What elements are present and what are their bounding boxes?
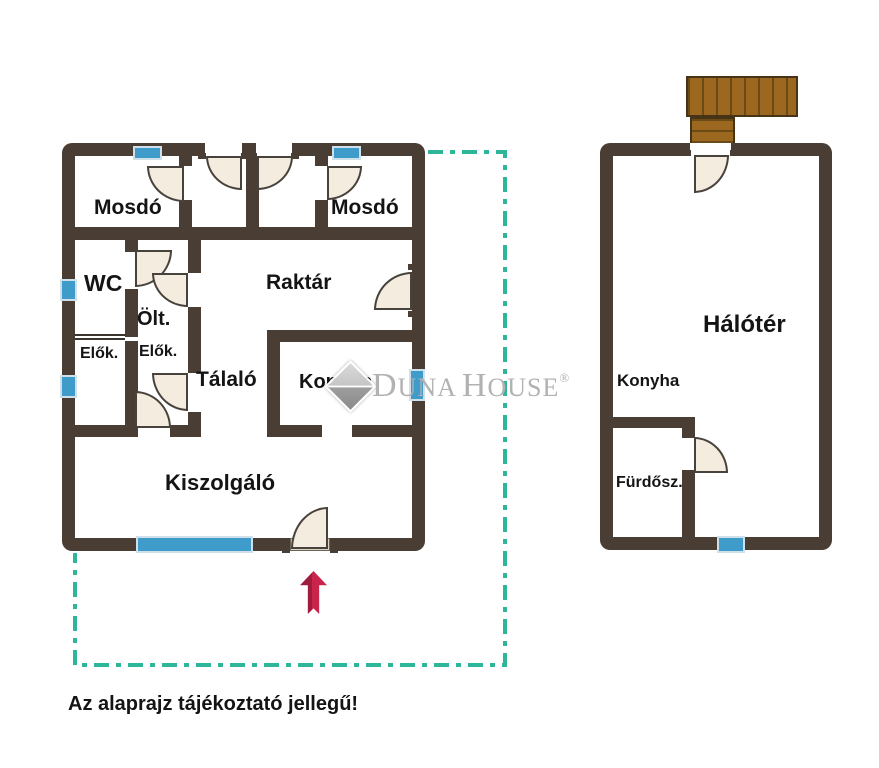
room-label-kiszolgalo: Kiszolgáló — [165, 471, 275, 495]
wall — [267, 425, 322, 437]
room-label-talalo: Tálaló — [196, 368, 257, 391]
window-large — [136, 536, 253, 553]
door-jamb — [730, 150, 738, 156]
door-jamb — [685, 471, 693, 477]
watermark-letters: OUSE — [487, 373, 559, 402]
wall — [352, 425, 412, 437]
window — [332, 146, 361, 160]
watermark-letters: UNA — [398, 373, 457, 402]
wall — [188, 240, 201, 273]
wall — [315, 156, 328, 166]
room-label-wc: WC — [84, 271, 122, 296]
door-jamb — [408, 311, 416, 317]
room-label-olt: Ölt. — [137, 308, 170, 330]
door-opening — [205, 143, 242, 156]
wall — [179, 156, 192, 166]
registered-trademark-icon: ® — [559, 370, 570, 385]
door-jamb — [408, 264, 416, 270]
wood-deck-steps — [690, 117, 735, 145]
wall — [75, 425, 136, 437]
thin-partition — [75, 334, 125, 340]
room-label-konyha-right: Konyha — [617, 372, 679, 391]
door-jamb — [685, 431, 693, 437]
disclaimer-text: Az alaprajz tájékoztató jellegű! — [68, 693, 358, 715]
wall — [75, 227, 412, 240]
wood-deck-upper — [686, 76, 798, 117]
watermark-letter: H — [462, 367, 488, 404]
dunahouse-watermark: DUNA HOUSE® — [372, 360, 570, 410]
floorplan-canvas: Mosdó Mosdó WC Ölt. Elők. Elők. Raktár T… — [0, 0, 879, 768]
door-opening — [256, 143, 292, 156]
window — [60, 375, 77, 398]
room-label-haloter: Hálótér — [703, 312, 786, 338]
room-label-mosdo-left: Mosdó — [94, 196, 162, 219]
window — [60, 279, 77, 301]
room-label-furdosz: Fürdősz. — [616, 474, 683, 492]
door-jamb — [249, 153, 257, 159]
room-label-mosdo-right: Mosdó — [331, 196, 399, 219]
room-label-raktar: Raktár — [266, 271, 331, 294]
door-jamb — [683, 150, 691, 156]
door-jamb — [198, 153, 206, 159]
wall — [170, 425, 201, 437]
wall — [267, 330, 412, 342]
wall — [315, 200, 328, 240]
room-label-elok-left: Elők. — [80, 345, 118, 363]
watermark-letter: D — [372, 367, 398, 404]
door-jamb — [330, 546, 338, 553]
wall — [179, 200, 192, 240]
wall — [188, 307, 201, 373]
room-label-elok-right: Elők. — [139, 343, 177, 361]
wall — [267, 330, 280, 437]
wall — [682, 470, 695, 537]
door-jamb — [282, 546, 290, 553]
door-jamb — [241, 153, 249, 159]
window — [133, 146, 162, 160]
window — [717, 536, 745, 553]
